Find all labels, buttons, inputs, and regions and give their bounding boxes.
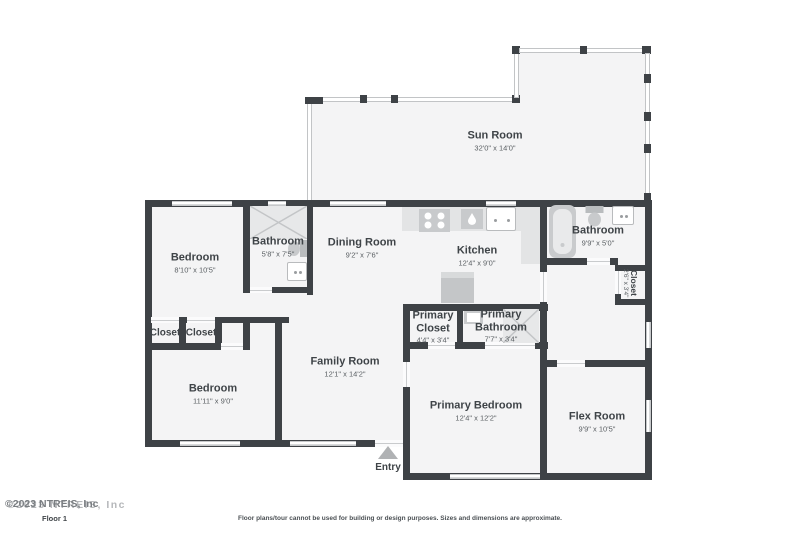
floor-plan-canvas: Entry Sun Room32'0" x 14'0" Bedroom8'10"… (0, 0, 800, 533)
window (646, 400, 651, 432)
bathroom-sink-icon (287, 262, 307, 281)
window (290, 441, 356, 446)
floor-label: Floor 1 (42, 514, 67, 523)
refrigerator-icon (441, 272, 474, 303)
window (172, 201, 232, 206)
wall (307, 200, 313, 295)
wall (610, 258, 618, 265)
room-label-closet-a: Closet (150, 327, 181, 339)
room-label-closet-b: Closet (186, 327, 217, 339)
wall-post (391, 95, 398, 103)
dishwasher-icon (461, 209, 483, 229)
room-label-dining-room: Dining Room9'2" x 7'6" (328, 237, 396, 260)
wall-post (644, 74, 651, 83)
wall (145, 200, 152, 447)
door-opening (187, 317, 215, 323)
wall (585, 360, 645, 367)
room-label-bathroom-2: Bathroom9'9" x 5'0" (572, 225, 624, 248)
room-label-primary-bedroom: Primary Bedroom12'4" x 12'2" (430, 400, 522, 423)
room-label-bedroom-1: Bedroom8'10" x 10'5" (171, 252, 219, 275)
room-label-bathroom-1: Bathroom5'8" x 7'5" (252, 236, 304, 259)
disclaimer-text: Floor plans/tour cannot be used for buil… (238, 515, 562, 522)
window (646, 322, 651, 348)
kitchen-sink-icon (486, 207, 516, 231)
watermark: ©2023 NTREIS, Inc (7, 499, 126, 511)
room-label-bedroom-2: Bedroom11'11" x 9'0" (189, 383, 237, 406)
room-label-primary-closet: Primary Closet4'4" x 3'4" (407, 309, 459, 344)
window (450, 474, 540, 479)
door-opening (221, 343, 243, 350)
wall (540, 200, 547, 272)
room-label-flex-room: Flex Room9'9" x 10'5" (569, 411, 625, 434)
door-opening (615, 271, 621, 294)
room-label-family-room: Family Room12'1" x 14'2" (310, 356, 379, 379)
sunroom-window (514, 52, 519, 98)
kitchen-counter (521, 207, 540, 264)
wall-post (644, 112, 651, 121)
entry-label: Entry (375, 462, 401, 473)
wall (540, 302, 547, 480)
bathroom-sink-icon (612, 206, 634, 225)
door-opening (587, 258, 610, 265)
room-label-primary-bathroom: Primary Bathroom7'7" x 3'4" (469, 308, 533, 343)
sun-room-area (517, 50, 648, 205)
wall-post (580, 46, 587, 54)
room-label-sun-room: Sun Room32'0" x 14'0" (468, 130, 523, 153)
door-opening (151, 317, 179, 323)
wall-post (360, 95, 367, 103)
stove-icon (419, 209, 450, 232)
wall (243, 200, 250, 293)
wall (275, 317, 282, 447)
window (486, 201, 516, 206)
entry-arrow-icon (378, 446, 398, 459)
sunroom-window (311, 97, 517, 102)
door-opening (540, 272, 547, 302)
door-opening (557, 360, 585, 367)
sunroom-window (307, 99, 312, 203)
room-label-kitchen: Kitchen12'4" x 9'0" (457, 245, 497, 268)
wall-post (644, 144, 651, 153)
door-opening (250, 287, 272, 293)
window (180, 441, 240, 446)
wall (305, 97, 323, 104)
window (330, 201, 386, 206)
door-opening (403, 362, 410, 387)
room-label-closet-hall: Closet2'6" x 3'4" (622, 267, 639, 299)
